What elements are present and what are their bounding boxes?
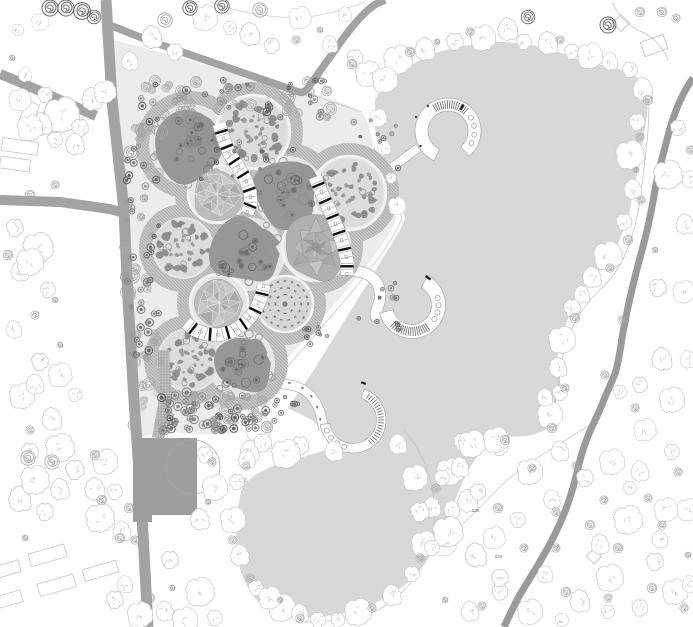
svg-text:529: 529: [495, 554, 503, 559]
svg-text:528: 528: [472, 508, 480, 513]
